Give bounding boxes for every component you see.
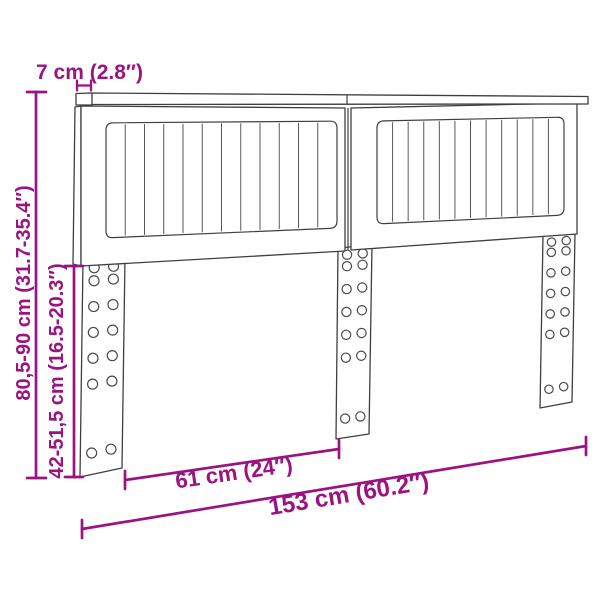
rail-thickness-label: 7 cm (2.8″) [36, 61, 143, 84]
mounting-hole [108, 300, 118, 310]
mounting-hole [88, 353, 98, 363]
top-rail [88, 93, 588, 105]
mounting-hole [356, 412, 365, 421]
mounting-hole [562, 236, 570, 244]
rail-thickness-dimension: 7 cm (2.8″) [36, 61, 143, 91]
mounting-hole [341, 414, 350, 423]
leg-height-label: 42-51,5 cm (16.5-20.3″) [46, 263, 68, 478]
total-height-dimension: 80,5-90 cm (31.7-35.4″) [13, 92, 46, 478]
mounting-hole [342, 307, 351, 316]
leg-height-dimension: 42-51,5 cm (16.5-20.3″) [46, 263, 83, 478]
top-rail-left-end-cap [76, 93, 92, 105]
mounting-hole [559, 382, 567, 390]
mounting-hole [108, 325, 118, 335]
mounting-hole [357, 328, 366, 337]
mounting-hole [341, 353, 350, 362]
mounting-hole [560, 328, 568, 336]
mounting-hole [561, 308, 569, 316]
mounting-hole [87, 448, 97, 458]
left-panel [81, 106, 345, 266]
mounting-hole [547, 269, 555, 277]
mounting-hole [358, 260, 367, 269]
mounting-hole [547, 238, 555, 246]
legs [80, 233, 575, 477]
right-leg [540, 233, 575, 408]
leg-spacing-label: 61 cm (24″) [174, 452, 295, 494]
mounting-hole [357, 351, 366, 360]
mounting-hole [562, 267, 570, 275]
mounting-hole [561, 287, 569, 295]
diagram-stage: 7 cm (2.8″) 80,5-90 cm (31.7-35.4″) 42-5… [0, 0, 600, 600]
center-leg [336, 245, 372, 439]
mounting-hole [358, 283, 367, 292]
mounting-hole [107, 376, 117, 386]
mounting-hole [357, 306, 366, 315]
total-width-dimension: 153 cm (60.2″) [82, 437, 586, 538]
mounting-hole [88, 379, 98, 389]
mounting-hole [545, 385, 553, 393]
total-height-label: 80,5-90 cm (31.7-35.4″) [13, 185, 35, 400]
left-leg [80, 257, 125, 477]
headboard-drawing [73, 93, 588, 477]
mounting-hole [342, 284, 351, 293]
left-panel-side-face [73, 106, 81, 266]
mounting-hole [342, 262, 351, 271]
mounting-hole [88, 327, 98, 337]
mounting-hole [562, 247, 570, 255]
mounting-hole [89, 302, 99, 312]
mounting-hole [546, 289, 554, 297]
headboard-dimension-diagram: 7 cm (2.8″) 80,5-90 cm (31.7-35.4″) 42-5… [0, 0, 600, 600]
mounting-hole [546, 310, 554, 318]
mounting-hole [106, 444, 116, 454]
mounting-hole [108, 274, 118, 284]
leg-spacing-dimension: 61 cm (24″) [125, 440, 339, 493]
mounting-hole [547, 248, 555, 256]
mounting-hole [107, 351, 117, 361]
mounting-hole [342, 330, 351, 339]
mounting-hole [358, 249, 367, 258]
mounting-hole [546, 330, 554, 338]
mounting-hole [89, 276, 99, 286]
right-panel [351, 103, 577, 250]
